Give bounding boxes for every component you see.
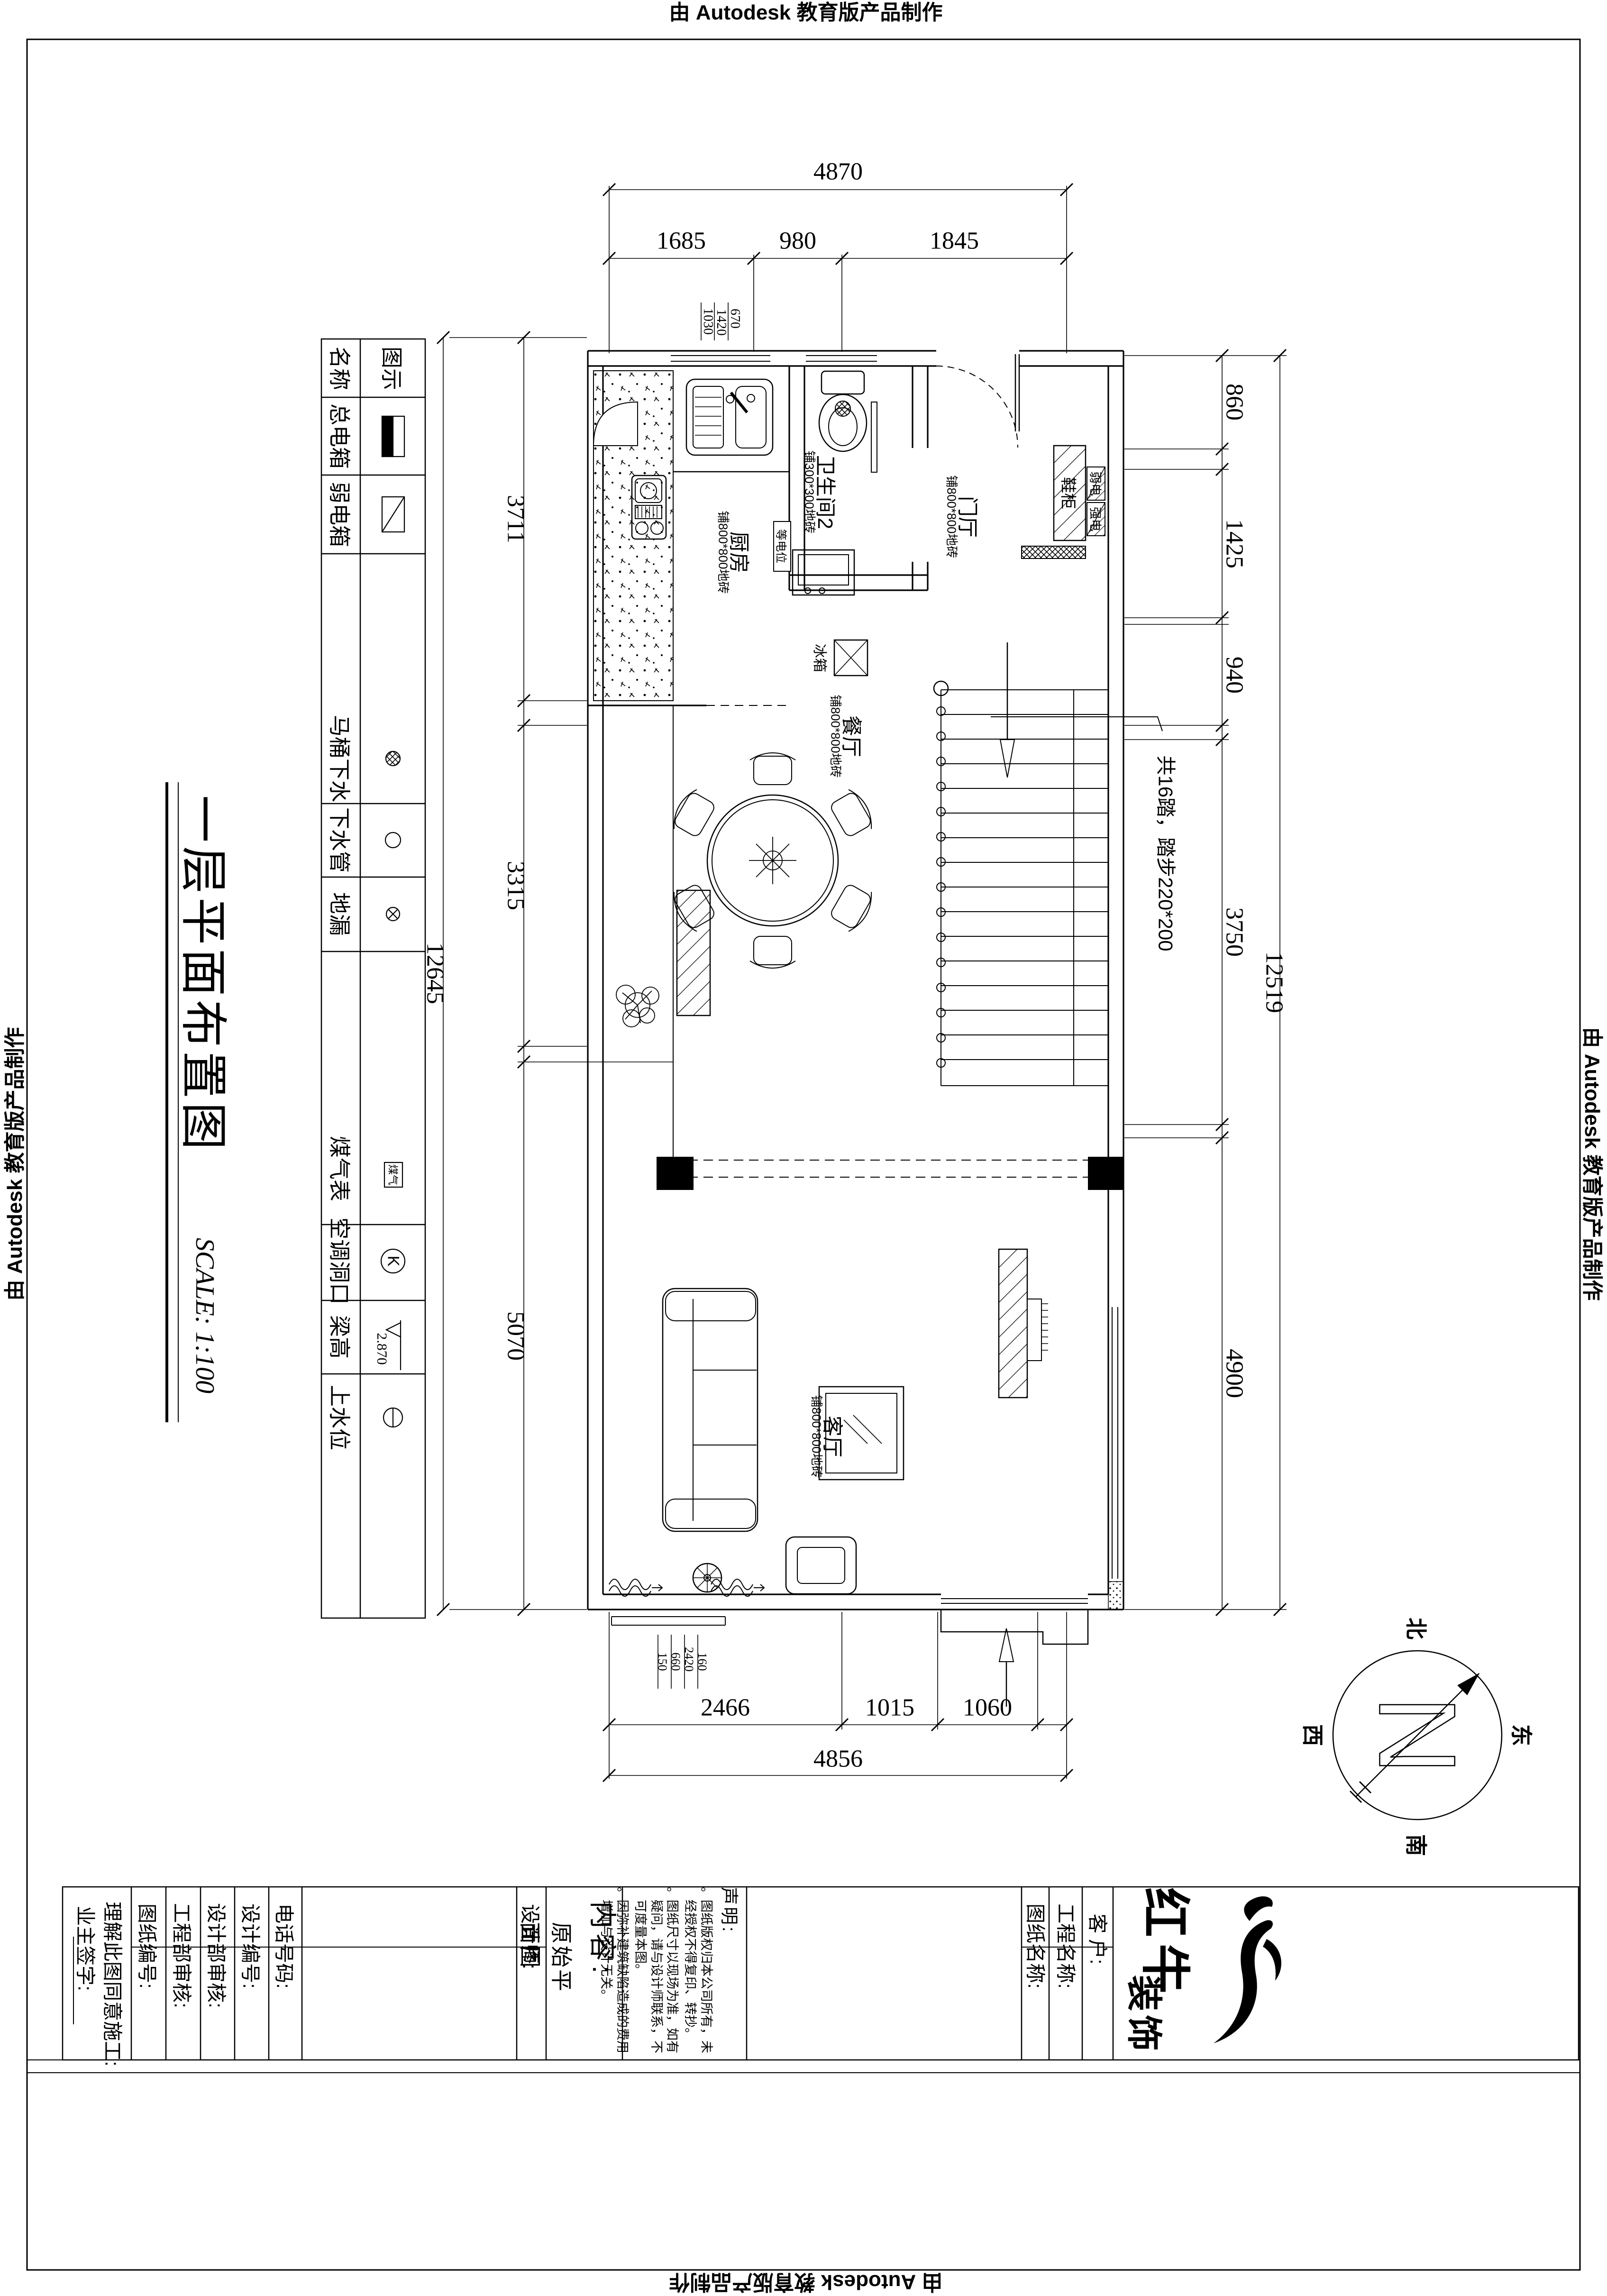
dimension-lines (443, 186, 1287, 1779)
legend-symbols (381, 416, 405, 1427)
entry-door (936, 354, 1019, 448)
dimension-ticks (437, 183, 1286, 1782)
compass: N (1333, 1651, 1502, 1820)
tb-content-value: 原始平面图 (516, 1901, 578, 2001)
kitchen-fixtures (593, 371, 789, 701)
staircase (934, 642, 1162, 1086)
wall-blocks (657, 1157, 1123, 1190)
tb-statement-2: 。图纸尺寸以现场为准，如有疑问，请与设计师联系，不可度量本图。 (632, 1887, 680, 2058)
dining-furniture (616, 753, 877, 1027)
brand-logo-swoosh (1214, 1896, 1281, 2043)
tb-statement-block: 声明: 。图纸版权归本公司所有，未经授权不得复印、转抄。 。图纸尺寸以现场为准，… (625, 1887, 744, 2058)
tb-statement-1: 。图纸版权归本公司所有，未经授权不得复印、转抄。 (682, 1887, 714, 2058)
living-furniture (663, 1249, 1123, 1610)
tb-statement-3: 。因弥补建筑缺陷造成的费用增加与设计无关。 (598, 1887, 630, 2058)
tb-statement-label: 声明: (718, 1887, 744, 2058)
floorplan-sheet: N 由 Autodesk 教育版产品制作 由 Autodesk 教育版产品制作 … (0, 0, 1607, 2296)
